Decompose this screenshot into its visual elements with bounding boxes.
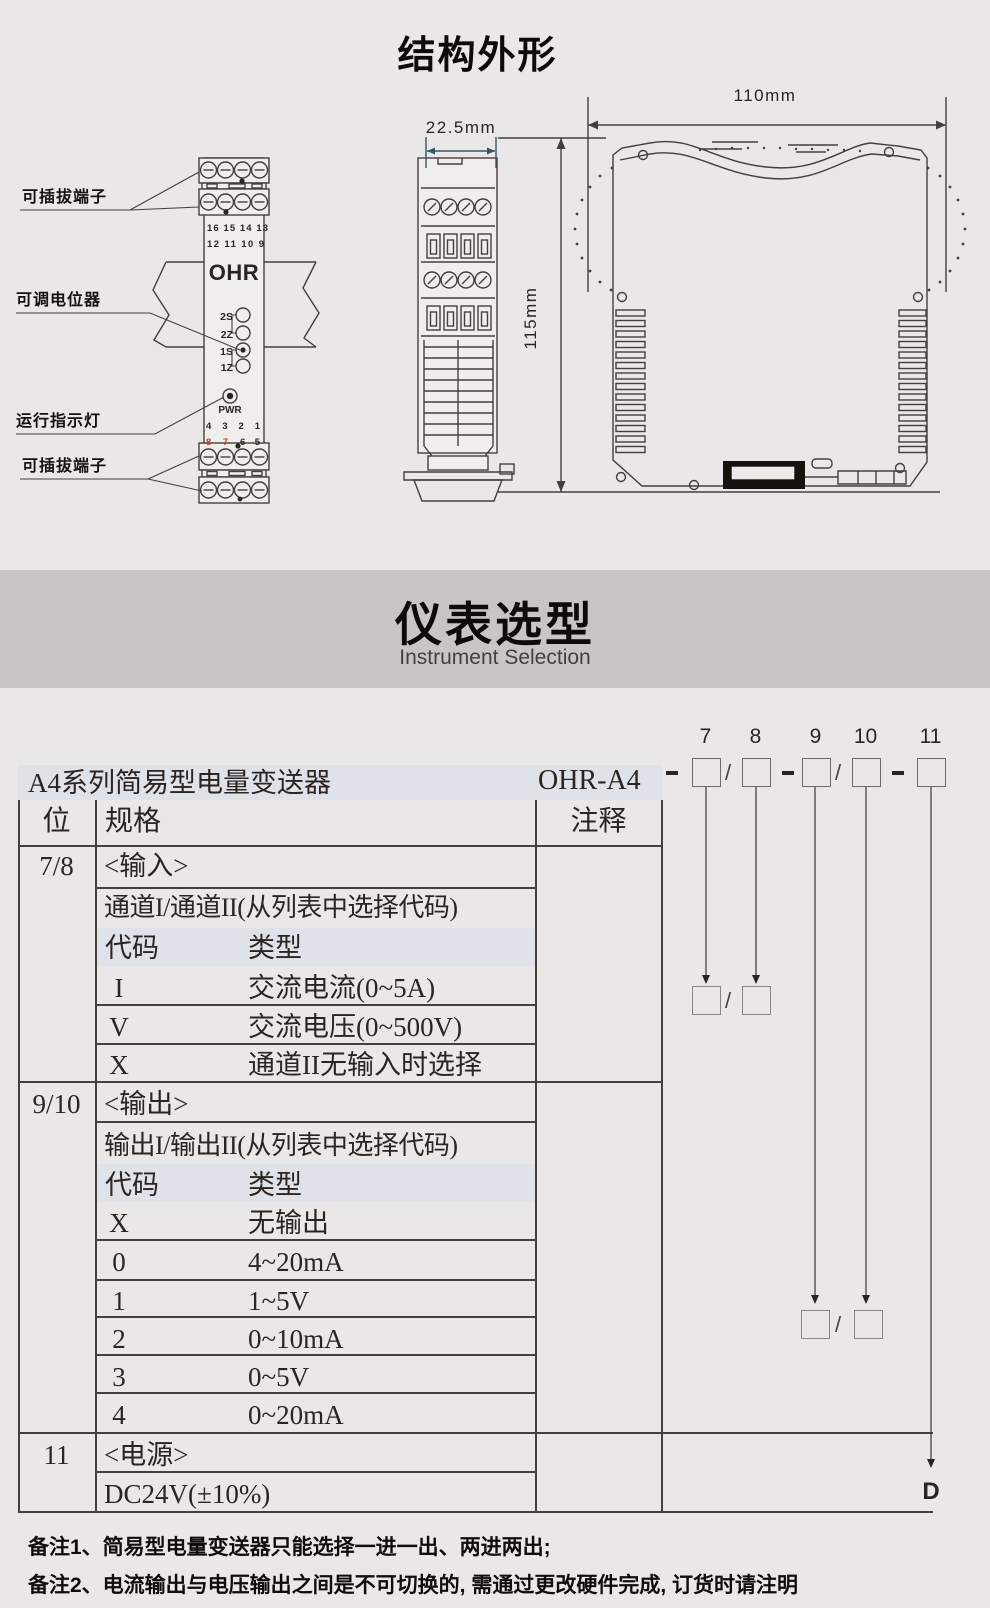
side-view [404, 158, 514, 501]
side-vents [424, 340, 493, 446]
dim-width-side: 22.5mm [426, 118, 496, 137]
digit-11: 11 [915, 725, 946, 749]
banner-title: 仪表选型 [0, 586, 990, 655]
type-cell: 通道II无输入时选择 [248, 1050, 482, 1080]
pot-label-1s: 1S [220, 346, 233, 358]
table-border [95, 1043, 535, 1045]
col-header-spec: 规格 [105, 807, 161, 837]
front-terminal-numbers-bot2-red: 8 7 [206, 437, 228, 448]
table-border [18, 1432, 933, 1434]
dim-height: 115mm [521, 287, 540, 350]
section-title: <电源> [104, 1440, 188, 1470]
model-prefix: OHR-A4 [538, 765, 641, 797]
section-pos: 9/10 [18, 1089, 95, 1119]
pot-label-2z: 2Z [221, 329, 234, 341]
section-subtitle: DC24V(±10%) [104, 1479, 270, 1509]
front-terminal-numbers-bot1: 4 3 2 1 [206, 421, 261, 432]
structure-title: 结构外形 [390, 24, 565, 79]
side-screws-1 [424, 199, 491, 215]
profile-din-clip [723, 459, 906, 489]
input-box-slash: / [725, 990, 731, 1012]
code-cell: 3 [102, 1362, 136, 1392]
potentiometers [232, 308, 250, 373]
input-box-ch1 [692, 986, 721, 1015]
code-cell: I [102, 973, 136, 1003]
model-box-9 [802, 758, 831, 787]
code-cell: 4 [102, 1400, 136, 1430]
type-cell: 无输出 [248, 1208, 329, 1238]
digit-8: 8 [742, 725, 769, 749]
code-header-highlight [95, 1164, 535, 1202]
note-1: 备注1、简易型电量变送器只能选择一进一出、两进两出; [28, 1535, 551, 1561]
table-border [95, 1316, 535, 1318]
din-rail [153, 262, 319, 347]
bottom-terminal-screws [199, 443, 269, 503]
section-pos: 7/8 [18, 851, 95, 881]
label-pluggable-terminal-bottom: 可插拔端子 [22, 458, 107, 476]
power-led [223, 389, 237, 403]
side-slots-2 [427, 306, 491, 330]
table-border [95, 887, 535, 889]
table-border [535, 800, 537, 1512]
type-cell: 交流电压(0~500V) [248, 1012, 462, 1042]
label-potentiometer: 可调电位器 [16, 292, 101, 310]
label-run-indicator: 运行指示灯 [16, 413, 101, 431]
output-box-ch2 [854, 1310, 883, 1339]
table-border [95, 1471, 535, 1473]
type-label: 类型 [248, 1170, 302, 1200]
table-border [95, 1392, 535, 1394]
code-cell: V [102, 1012, 136, 1042]
top-terminal-screws [201, 162, 268, 210]
section-title: <输入> [104, 851, 188, 881]
section-subtitle: 通道I/通道II(从列表中选择代码) [104, 893, 458, 923]
code-cell: X [102, 1050, 136, 1080]
front-terminal-numbers-top2: 12 11 10 9 [207, 239, 264, 250]
table-border [95, 1004, 535, 1006]
brand-logo: OHR [209, 260, 259, 285]
section-subtitle: 输出I/输出II(从列表中选择代码) [104, 1131, 458, 1161]
leader-lines [16, 172, 240, 491]
table-border [95, 1239, 535, 1241]
table-border [18, 845, 662, 847]
code-cell: 0 [102, 1247, 136, 1277]
section-title: <输出> [104, 1089, 188, 1119]
table-border [95, 1121, 535, 1123]
pot-label-1z: 1Z [221, 362, 234, 374]
table-border [95, 1279, 535, 1281]
table-border [95, 1354, 535, 1356]
output-box-ch1 [801, 1310, 830, 1339]
profile-vents-left [616, 310, 645, 453]
side-screws-2 [424, 272, 491, 288]
datasheet-page: 16 15 14 13 12 11 10 9 OHR 2S 2Z 1S 1Z P… [0, 0, 990, 1608]
dimension-115 [498, 138, 940, 492]
table-border [95, 800, 97, 1512]
pwr-label: PWR [218, 405, 242, 416]
model-box-8 [742, 758, 771, 787]
code-label: 代码 [105, 933, 159, 963]
type-cell: 0~20mA [248, 1400, 344, 1430]
model-dash [892, 771, 904, 775]
section-banner: 仪表选型 Instrument Selection [0, 570, 990, 688]
model-box-10 [852, 758, 881, 787]
col-header-pos: 位 [18, 807, 95, 837]
code-label: 代码 [105, 1170, 159, 1200]
model-box-11 [917, 758, 946, 787]
input-box-ch2 [742, 986, 771, 1015]
output-box-slash: / [835, 1314, 841, 1336]
model-slash: / [725, 762, 731, 784]
front-view [199, 158, 269, 503]
table-border [18, 1511, 933, 1513]
type-cell: 0~5V [248, 1362, 309, 1392]
label-pluggable-terminal-top: 可插拔端子 [22, 189, 107, 207]
type-label: 类型 [248, 933, 302, 963]
type-cell: 交流电流(0~5A) [248, 973, 435, 1003]
series-title: A4系列简易型电量变送器 [28, 768, 331, 798]
digit-7: 7 [692, 725, 719, 749]
front-terminal-numbers-bot2: 6 5 [240, 437, 261, 448]
side-slots-1 [427, 234, 491, 258]
code-cell: 1 [102, 1286, 136, 1316]
model-dash [782, 771, 794, 775]
col-header-note: 注释 [535, 807, 662, 837]
type-cell: 4~20mA [248, 1247, 344, 1277]
profile-vents-right [899, 310, 926, 453]
power-suffix: D [916, 1478, 946, 1506]
front-terminal-numbers-top1: 16 15 14 13 [207, 223, 268, 234]
note-2: 备注2、电流输出与电压输出之间是不可切换的, 需通过更改硬件完成, 订货时请注明 [28, 1573, 798, 1599]
technical-drawing: 16 15 14 13 12 11 10 9 OHR 2S 2Z 1S 1Z P… [0, 0, 990, 1608]
dimension-110 [588, 97, 946, 292]
dimension-22-5 [426, 137, 496, 168]
digit-10: 10 [850, 725, 881, 749]
profile-view [574, 141, 967, 489]
table-border [18, 1081, 662, 1083]
type-cell: 0~10mA [248, 1324, 344, 1354]
table-border [18, 800, 20, 1512]
code-cell: X [102, 1208, 136, 1238]
model-box-7 [692, 758, 721, 787]
pot-label-2s: 2S [220, 311, 233, 323]
model-slash: / [835, 762, 841, 784]
digit-9: 9 [802, 725, 829, 749]
model-dash [666, 771, 678, 775]
section-pos: 11 [18, 1440, 95, 1470]
type-cell: 1~5V [248, 1286, 309, 1316]
table-border [661, 800, 663, 1512]
dim-width-profile: 110mm [734, 86, 797, 105]
code-header-highlight [95, 928, 535, 966]
model-code-arrows [702, 787, 935, 1468]
banner-subtitle: Instrument Selection [0, 646, 990, 670]
code-cell: 2 [102, 1324, 136, 1354]
swing-arc-dots [574, 147, 967, 292]
